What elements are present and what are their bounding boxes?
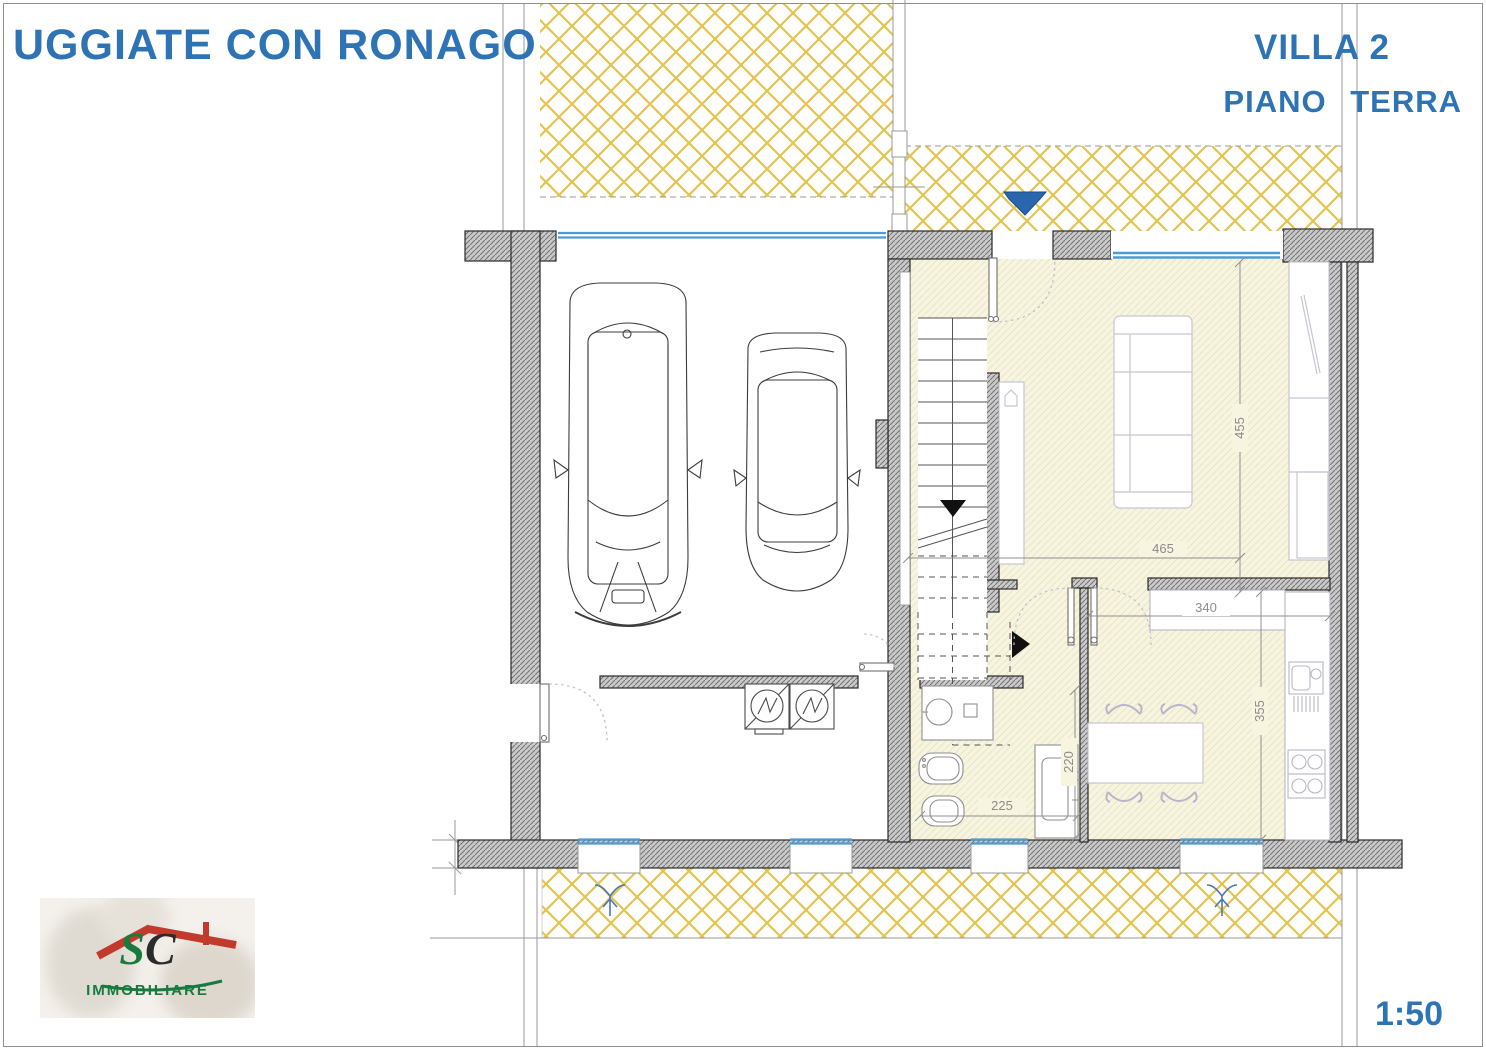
garage-door [558,233,886,238]
dim-utility-depth: 220 [1061,738,1077,786]
kitchen-window-sill [1180,843,1263,873]
side-door-opening [510,684,541,742]
scale-label: 1:50 [1375,997,1443,1031]
dim-living-depth: 455 [1232,404,1248,452]
dim-kitchen-width: 340 [1182,600,1230,616]
agency-logo: SC IMMOBILIARE [40,898,255,1018]
toilet [919,753,963,784]
sofa [1114,316,1192,508]
logo-company-name: IMMOBILIARE [40,982,255,999]
bath-window-sill [971,843,1028,873]
car-sedan [734,333,860,591]
car-suv [554,283,702,626]
floor-title: PIANO TERRA [1223,86,1462,117]
dim-bathroom-width: 225 [978,798,1026,814]
drawing-sheet: UGGIATE CON RONAGO VILLA 2 PIANO TERRA 1… [0,0,1486,1050]
logo-letter-s: S [119,923,145,974]
dim-kitchen-depth: 355 [1252,687,1268,735]
garage-window-sill [578,843,640,873]
garage-hall-door-leaf [860,663,894,671]
sideboard [1289,262,1329,560]
garage-window-sill2 [790,843,852,873]
entrance-door-leaf [989,258,997,320]
floor-plan-drawing [0,0,1486,1050]
logo-initials: SC [40,926,255,972]
villa-title: VILLA 2 [1254,30,1390,65]
heat-pump-units [745,684,834,734]
wall-cavity [900,272,910,605]
washbasin-counter [922,686,993,740]
dim-living-width: 465 [1139,541,1187,557]
hall-closet [999,382,1024,564]
garage-side-door-leaf [540,684,549,742]
logo-letter-c: C [145,923,176,974]
location-title: UGGIATE CON RONAGO [13,24,537,67]
